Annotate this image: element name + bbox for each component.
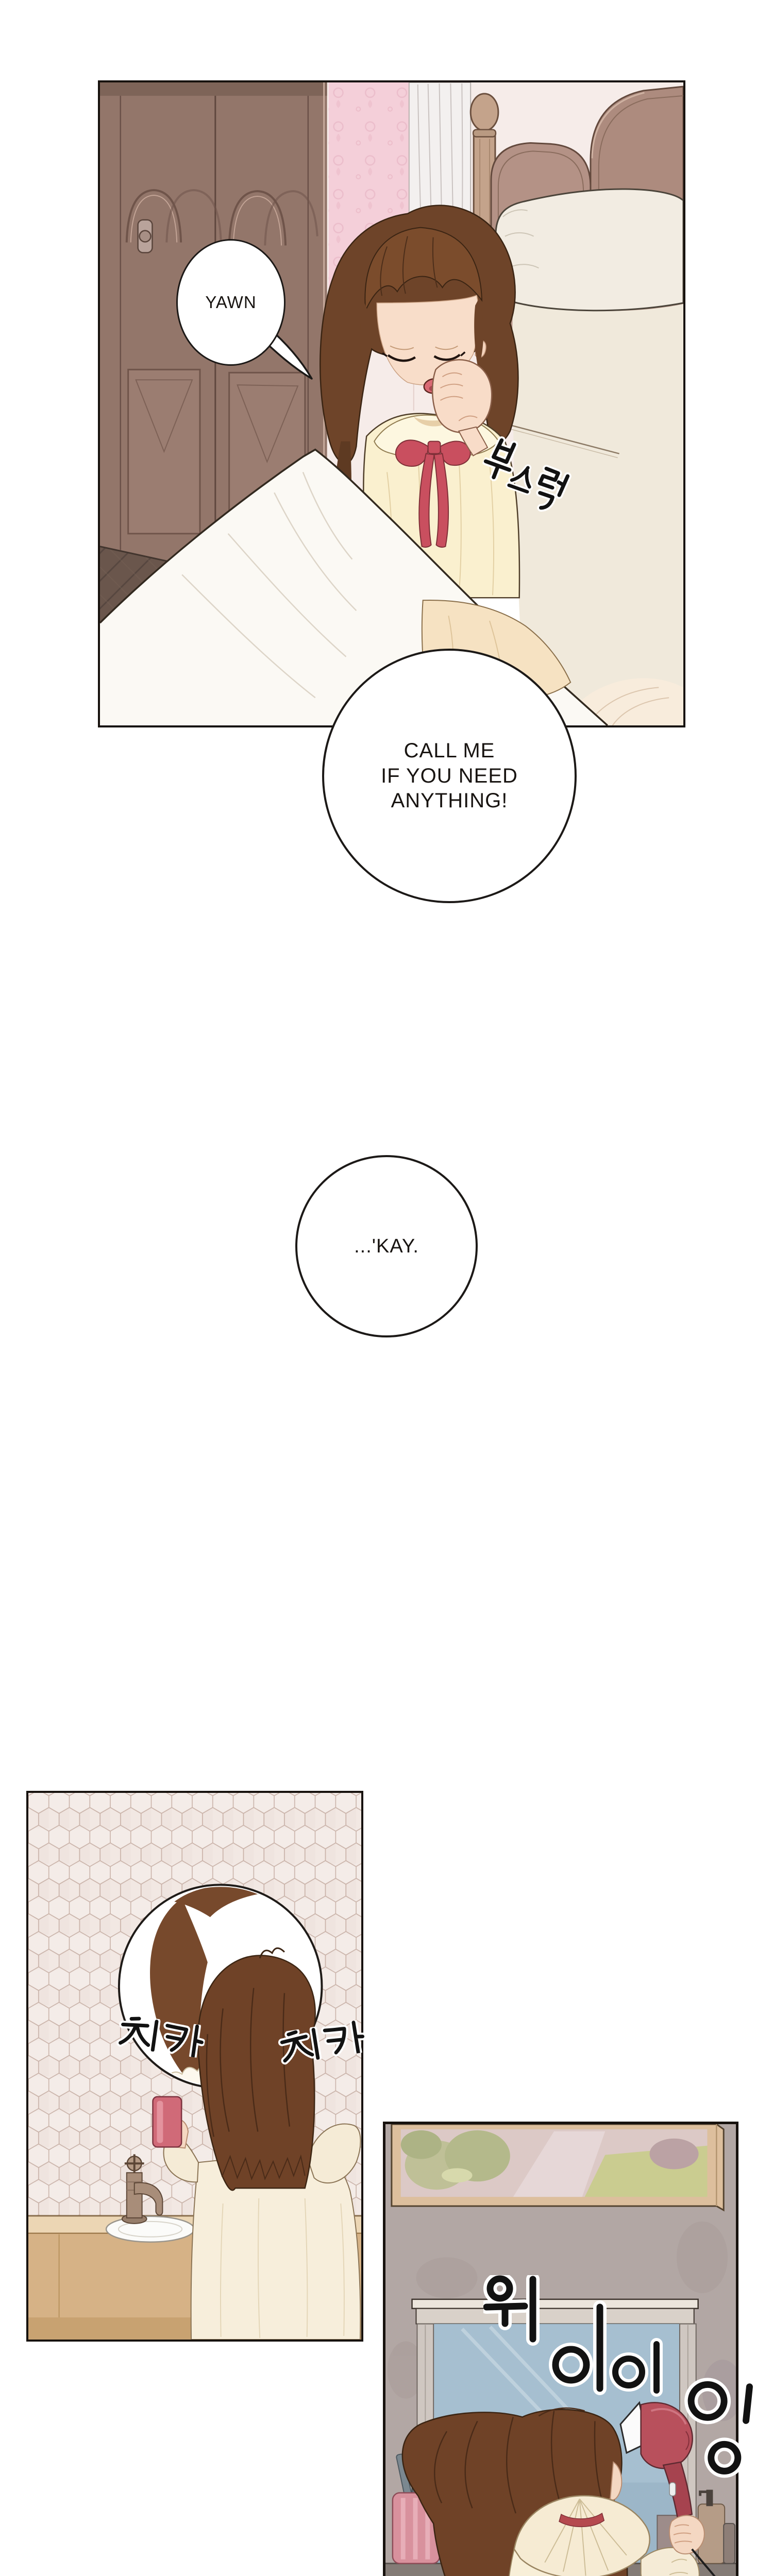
speech-bubble-kay: ...'KAY.	[295, 1155, 478, 1337]
sink-basin-left	[106, 2216, 194, 2242]
call-me-text: CALL ME IF YOU NEED ANYTHING!	[381, 738, 518, 814]
pillow	[496, 189, 683, 311]
kay-text: ...'KAY.	[354, 1235, 419, 1258]
sfx-dryer: 위이이잉	[483, 2275, 758, 2481]
framed-painting	[392, 2124, 724, 2210]
speech-bubble-call-me: CALL ME IF YOU NEED ANYTHING!	[322, 649, 577, 903]
toothbrush-cup	[153, 2097, 182, 2147]
comic-page: YAWN 부스럭 CALL ME IF YOU NEED ANYTHING! .…	[0, 0, 773, 2576]
sfx-dryer-glyphs	[483, 2275, 758, 2481]
dryer-hand	[669, 2515, 704, 2554]
bathroom-art	[28, 1793, 361, 2340]
panel-bathroom	[26, 1791, 363, 2342]
bedroom-art	[100, 82, 683, 725]
yawn-text: YAWN	[205, 293, 256, 312]
speech-bubble-yawn: YAWN	[176, 239, 285, 366]
panel-bedroom	[98, 80, 685, 727]
